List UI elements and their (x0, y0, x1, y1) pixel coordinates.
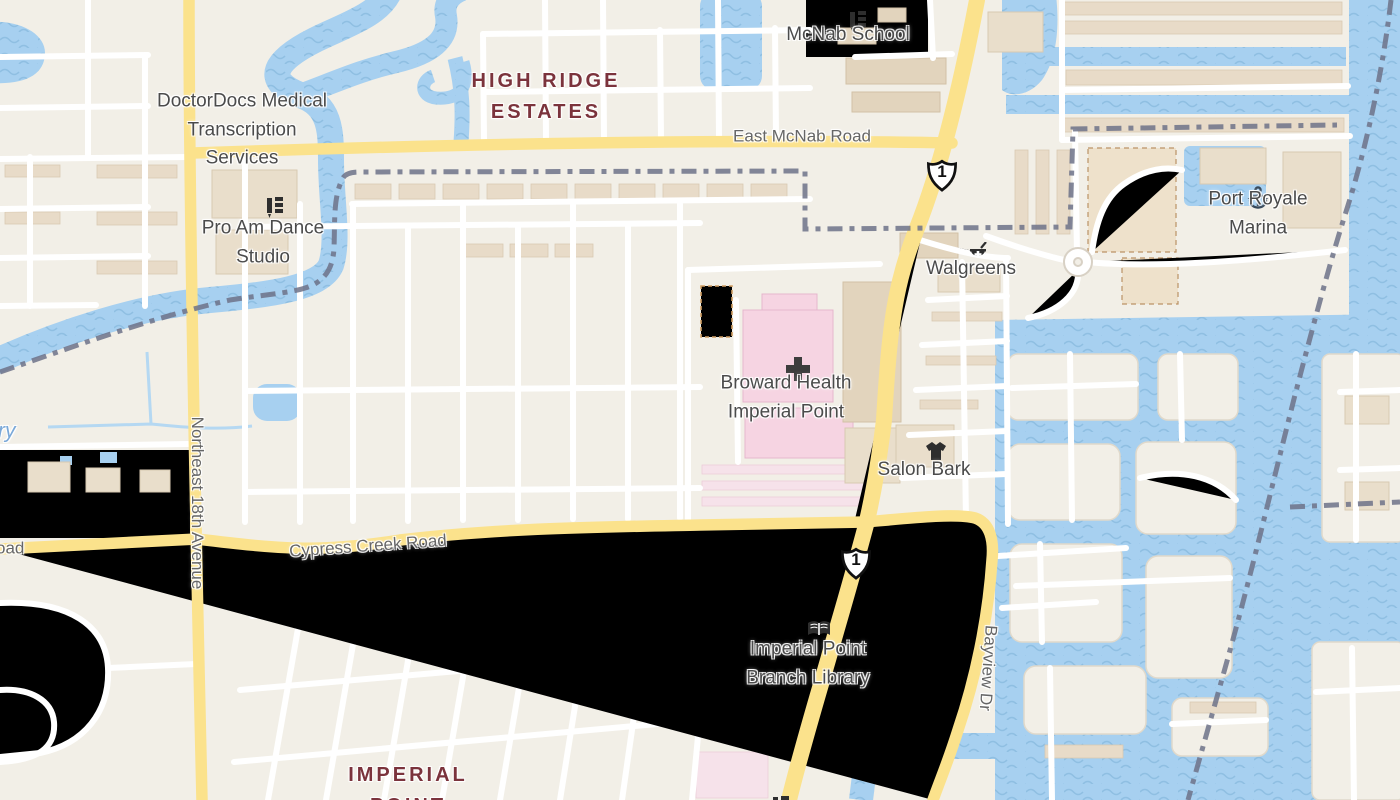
route-number: 1 (839, 550, 873, 570)
road-label-east-mcnab: East McNab Road (733, 123, 871, 149)
us-route-1-shield: 1 (839, 546, 873, 582)
road-label-partial: oad (0, 535, 24, 561)
poi-label-port-royale-marina: Port Royale Marina (1187, 186, 1329, 243)
route-number: 1 (925, 162, 959, 182)
map-canvas[interactable]: 1 1 McNab School HIGH RIDGE ESTATES Doct… (0, 0, 1400, 800)
water-label-partial: ry (0, 415, 16, 447)
neighborhood-label-imperial-point: IMPERIAL POINT (348, 760, 468, 800)
poi-label-walgreens: Walgreens (926, 255, 1016, 284)
poi-label-salon-bark: Salon Bark (878, 456, 971, 485)
poi-label-broward-health: Broward Health Imperial Point (721, 370, 852, 427)
road-label-northeast-18th-avenue: Northeast 18th Avenue (184, 417, 210, 590)
poi-label-pro-am-dance: Pro Am Dance Studio (202, 215, 325, 272)
neighborhood-label-high-ridge-estates: HIGH RIDGE ESTATES (472, 66, 621, 128)
poi-label-imperial-point-library: Imperial Point Branch Library (746, 636, 870, 693)
us-route-1-shield: 1 (925, 158, 959, 194)
poi-label-mcnab-school: McNab School (786, 21, 910, 50)
poi-label-doctordocs: DoctorDocs Medical Transcription Service… (157, 87, 327, 173)
